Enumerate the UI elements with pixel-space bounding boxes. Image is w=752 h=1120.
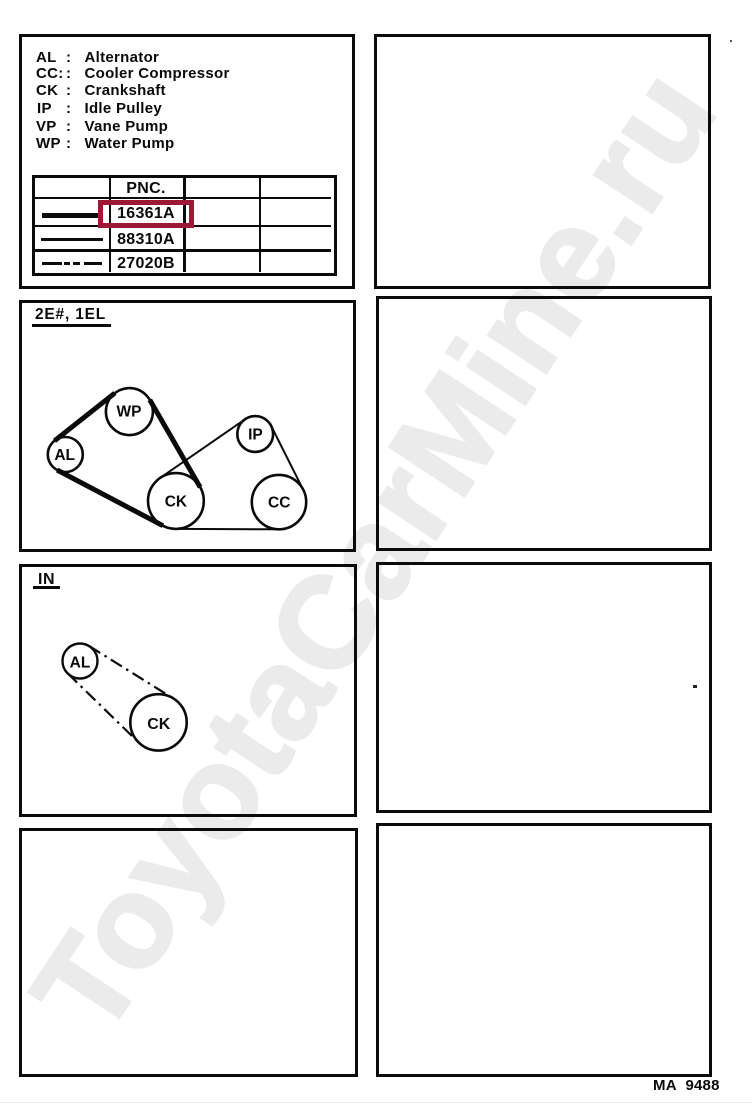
svg-text:AL: AL — [70, 655, 91, 672]
svg-text:CC: CC — [268, 495, 290, 512]
svg-text:CK: CK — [165, 493, 188, 510]
svg-text:WP: WP — [117, 404, 142, 421]
svg-text:IP: IP — [248, 426, 263, 443]
svg-text:AL: AL — [54, 447, 75, 464]
svg-text:CK: CK — [147, 716, 171, 733]
